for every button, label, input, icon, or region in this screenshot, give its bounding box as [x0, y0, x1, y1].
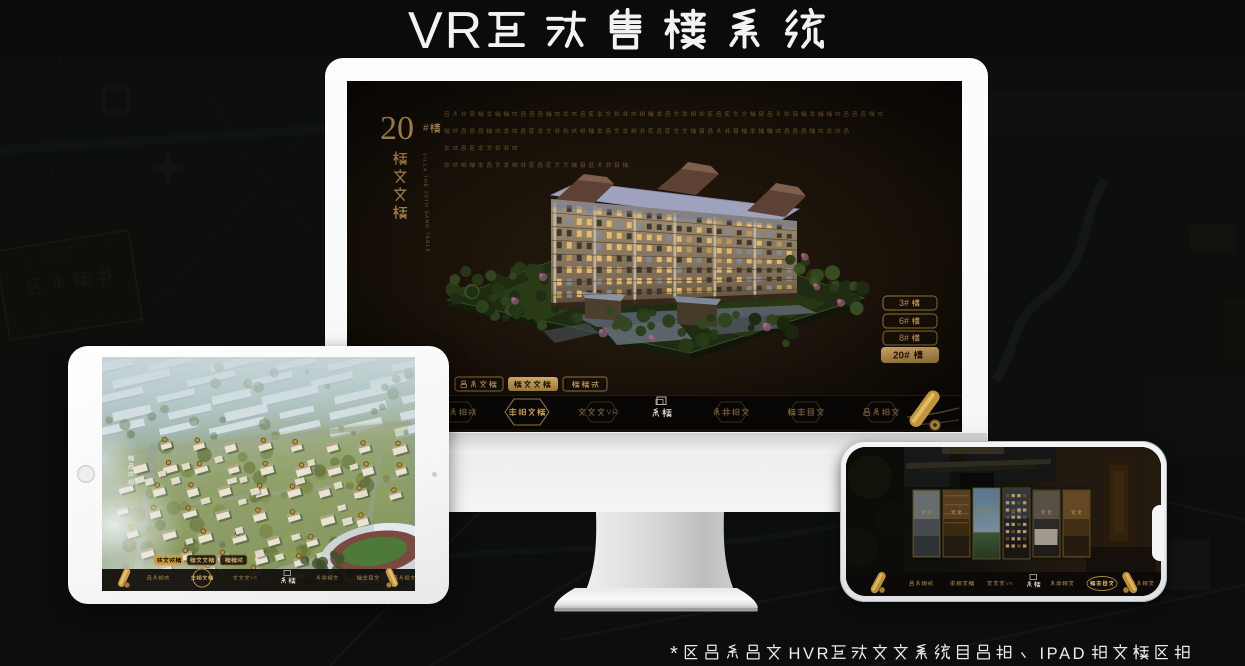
svg-text:*: *	[670, 643, 678, 665]
svg-text:VR: VR	[408, 2, 484, 60]
svg-text:VR: VR	[607, 408, 619, 417]
svg-text:HVR: HVR	[789, 645, 832, 663]
svg-text:IPAD: IPAD	[1040, 645, 1088, 663]
svg-text:VR: VR	[1006, 581, 1014, 586]
svg-text:VR: VR	[250, 575, 258, 580]
